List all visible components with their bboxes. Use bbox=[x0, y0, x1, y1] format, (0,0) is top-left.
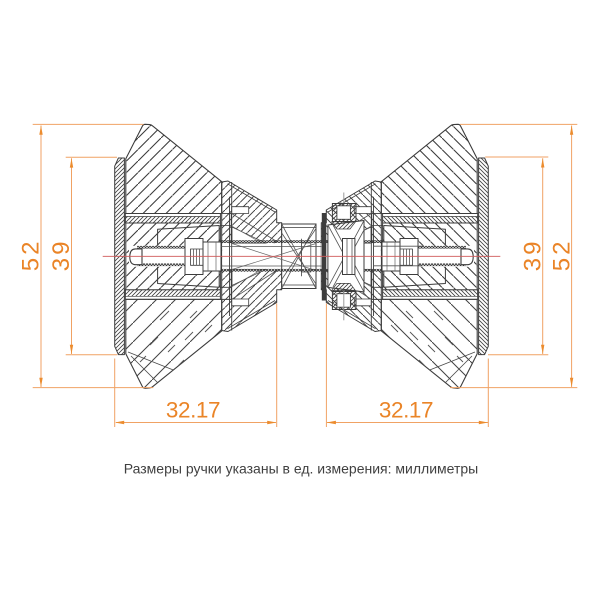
svg-text:32.17: 32.17 bbox=[379, 398, 433, 423]
svg-text:Размеры ручки указаны в ед. из: Размеры ручки указаны в ед. измерения: м… bbox=[124, 461, 478, 477]
svg-text:39: 39 bbox=[519, 238, 546, 271]
svg-text:32.17: 32.17 bbox=[166, 398, 220, 423]
svg-text:39: 39 bbox=[48, 238, 75, 271]
svg-text:52: 52 bbox=[548, 238, 575, 271]
svg-text:52: 52 bbox=[18, 238, 45, 271]
